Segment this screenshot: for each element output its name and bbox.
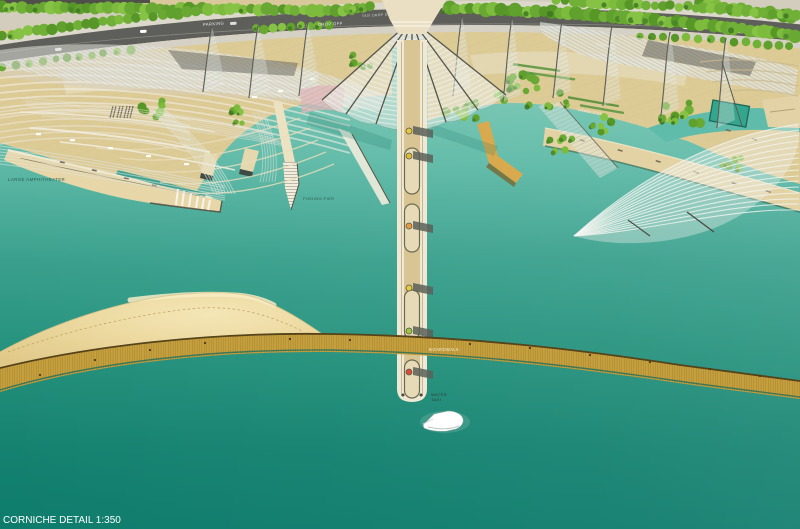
svg-text:TAXI: TAXI [431,397,441,402]
svg-text:FISHING PIER: FISHING PIER [303,196,334,201]
svg-text:LARGE AMPHITHEATER: LARGE AMPHITHEATER [8,177,65,182]
svg-text:CORNICHE DETAIL 1:350: CORNICHE DETAIL 1:350 [3,515,121,526]
svg-text:BOARDWALK: BOARDWALK [429,347,459,352]
